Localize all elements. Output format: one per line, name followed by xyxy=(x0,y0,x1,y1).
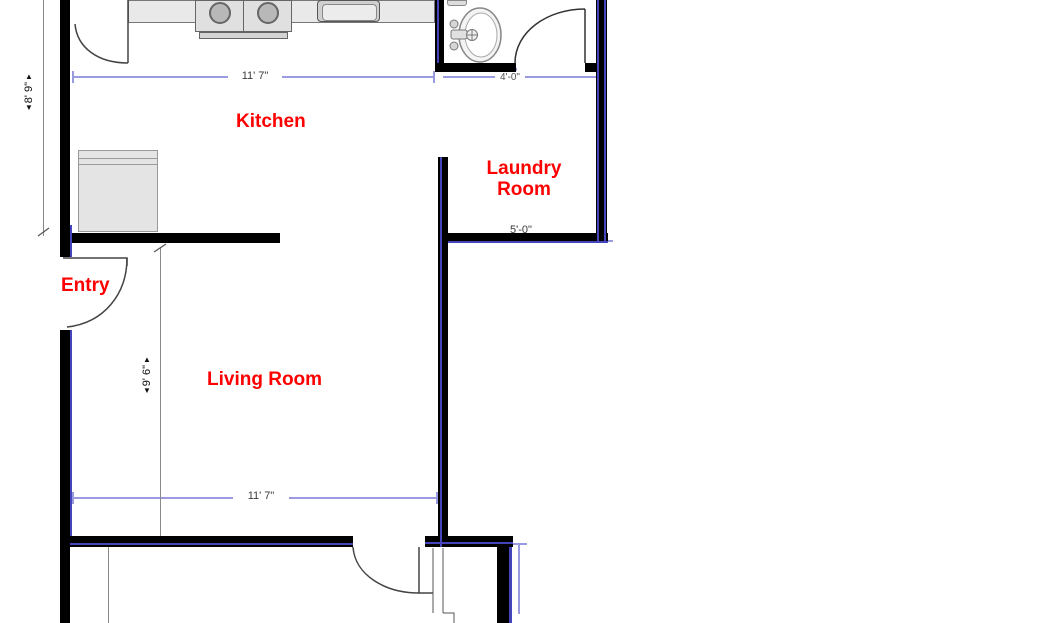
refrigerator xyxy=(78,150,158,232)
wall-left-upper xyxy=(60,0,70,257)
faucet-handle-icon xyxy=(450,20,458,28)
wall-accent xyxy=(425,542,513,544)
refrigerator-door-line xyxy=(79,164,157,165)
entry-label: Entry xyxy=(61,275,110,296)
laundry-label-line2: Room xyxy=(469,179,579,200)
stove-front-lip xyxy=(199,32,288,39)
up-arrow-icon: ▲ xyxy=(25,73,33,81)
wall-kitchen-bottom xyxy=(60,233,280,243)
laundry-room-label: Laundry Room xyxy=(469,158,579,200)
lower-door-frame xyxy=(433,548,454,623)
wall-left-lower xyxy=(60,330,70,623)
wall-accent xyxy=(440,157,442,547)
wall-living-bottom-left xyxy=(60,536,353,547)
living-room-label: Living Room xyxy=(207,369,322,390)
wall-accent xyxy=(70,330,72,536)
wall-accent xyxy=(70,225,72,257)
dimension-kitchen-width: 11' 7" xyxy=(228,70,282,83)
dimension-extension-line xyxy=(518,545,520,614)
dimension-living-height: ▲ 9' 6" ▼ xyxy=(134,356,160,395)
kitchen-label: Kitchen xyxy=(236,111,306,132)
wall-accent xyxy=(597,0,599,243)
dimension-tick xyxy=(433,71,435,83)
bathroom-sink xyxy=(450,8,501,62)
drain-icon xyxy=(467,30,478,41)
plan-linework xyxy=(0,0,1051,623)
dimension-living-width: 11' 7" xyxy=(233,490,289,503)
floor-plan: Kitchen Laundry Room Entry Living Room 1… xyxy=(0,0,1051,623)
faucet-handle-icon xyxy=(450,42,458,50)
dimension-kitchen-height: ▲ 8' 9" ▼ xyxy=(16,73,42,112)
up-arrow-icon: ▲ xyxy=(143,356,151,364)
refrigerator-door-line xyxy=(79,158,157,159)
toilet-partial xyxy=(447,0,467,6)
wall-accent xyxy=(448,241,608,243)
lower-room-line xyxy=(108,547,109,623)
kitchen-door-swing xyxy=(75,0,128,63)
dimension-tick xyxy=(72,492,74,504)
dimension-bath-width: 4'-0" xyxy=(495,71,525,84)
dimension-tick xyxy=(72,71,74,83)
stove-burner-icon xyxy=(257,2,279,24)
wall-accent xyxy=(70,543,353,545)
faucet-icon xyxy=(451,30,467,39)
wall-bathroom-bottom-left xyxy=(435,63,516,72)
bathroom-door-swing xyxy=(515,9,585,63)
kitchen-sink xyxy=(317,0,380,22)
wall-accent xyxy=(604,0,606,243)
wall-accent xyxy=(509,547,512,623)
dimension-kitchen-height-text: 8' 9" xyxy=(23,82,35,103)
wall-accent xyxy=(437,0,439,63)
laundry-label-line1: Laundry xyxy=(469,158,579,179)
down-arrow-icon: ▼ xyxy=(25,104,33,112)
down-arrow-icon: ▼ xyxy=(143,387,151,395)
extension-line-kitchen-height xyxy=(43,0,44,236)
stove-burner-icon xyxy=(209,2,231,24)
kitchen-sink-basin xyxy=(322,4,377,21)
bottom-door-swing xyxy=(353,547,433,593)
dimension-living-height-text: 9' 6" xyxy=(141,365,153,386)
stove-divider xyxy=(243,0,244,32)
dimension-line-bath-width xyxy=(443,76,607,78)
extension-line-living-height xyxy=(160,247,161,536)
